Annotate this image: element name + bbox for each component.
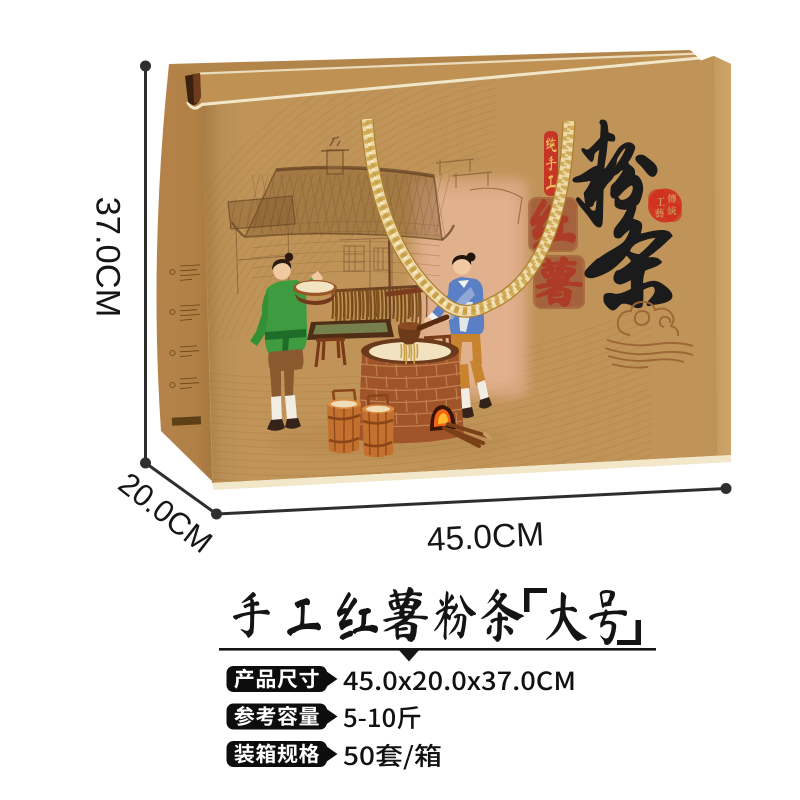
svg-text:37.0CM: 37.0CM	[89, 197, 127, 318]
svg-text:45.0CM: 45.0CM	[426, 516, 545, 559]
svg-text:20.0CM: 20.0CM	[112, 466, 219, 560]
